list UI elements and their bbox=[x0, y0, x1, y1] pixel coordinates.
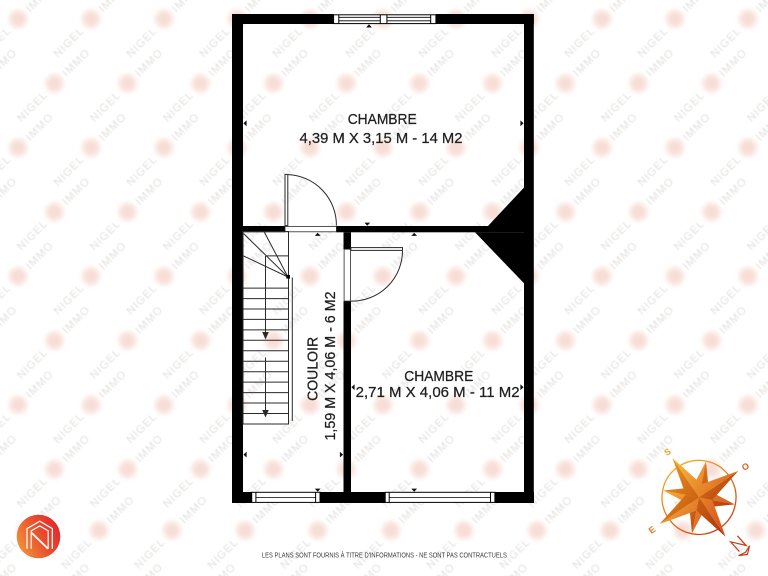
svg-text:NIGEL: NIGEL bbox=[644, 536, 679, 571]
svg-text:IMMO: IMMO bbox=[608, 0, 640, 15]
svg-text:NIGEL: NIGEL bbox=[745, 218, 768, 253]
svg-text:IMMO: IMMO bbox=[616, 494, 648, 526]
svg-text:IMMO: IMMO bbox=[243, 0, 275, 15]
svg-text:2,71 M X 4,06 M - 11 M2: 2,71 M X 4,06 M - 11 M2 bbox=[356, 384, 520, 401]
svg-text:COULOIR: COULOIR bbox=[305, 337, 322, 401]
svg-text:LES PLANS SONT FOURNIS À TITRE: LES PLANS SONT FOURNIS À TITRE D'INFORMA… bbox=[262, 551, 507, 560]
svg-text:IMMO: IMMO bbox=[105, 494, 137, 526]
svg-text:IMMO: IMMO bbox=[170, 0, 202, 15]
svg-text:NIGEL: NIGEL bbox=[745, 346, 768, 381]
svg-text:IMMO: IMMO bbox=[24, 0, 56, 15]
svg-text:NIGEL: NIGEL bbox=[206, 536, 241, 571]
svg-text:IMMO: IMMO bbox=[0, 175, 20, 207]
svg-text:IMMO: IMMO bbox=[543, 494, 575, 526]
svg-text:IMMO: IMMO bbox=[681, 0, 713, 15]
svg-text:NIGEL: NIGEL bbox=[571, 536, 606, 571]
svg-text:IMMO: IMMO bbox=[462, 0, 494, 15]
svg-text:NIGEL: NIGEL bbox=[133, 536, 168, 571]
svg-text:IMMO: IMMO bbox=[97, 0, 129, 15]
svg-text:S: S bbox=[662, 446, 673, 458]
svg-text:IMMO: IMMO bbox=[0, 304, 20, 336]
svg-text:IMMO: IMMO bbox=[316, 0, 348, 15]
svg-text:IMMO: IMMO bbox=[754, 0, 768, 15]
svg-text:CHAMBRE: CHAMBRE bbox=[404, 368, 473, 385]
svg-text:1,59 M X 4,06 M - 6 M2: 1,59 M X 4,06 M - 6 M2 bbox=[322, 292, 339, 441]
svg-text:IMMO: IMMO bbox=[0, 47, 20, 79]
svg-text:NIGEL: NIGEL bbox=[60, 536, 95, 571]
svg-text:NIGEL: NIGEL bbox=[745, 89, 768, 124]
svg-text:NIGEL: NIGEL bbox=[745, 475, 768, 510]
svg-text:4,39 M X 3,15 M - 14 M2: 4,39 M X 3,15 M - 14 M2 bbox=[300, 130, 463, 147]
svg-text:E: E bbox=[647, 524, 658, 536]
svg-text:IMMO: IMMO bbox=[389, 0, 421, 15]
svg-text:IMMO: IMMO bbox=[0, 433, 20, 465]
svg-text:IMMO: IMMO bbox=[535, 0, 567, 15]
svg-text:O: O bbox=[740, 461, 751, 473]
svg-text:NIGEL: NIGEL bbox=[717, 536, 752, 571]
svg-text:IMMO: IMMO bbox=[178, 494, 210, 526]
svg-text:CHAMBRE: CHAMBRE bbox=[348, 111, 417, 128]
